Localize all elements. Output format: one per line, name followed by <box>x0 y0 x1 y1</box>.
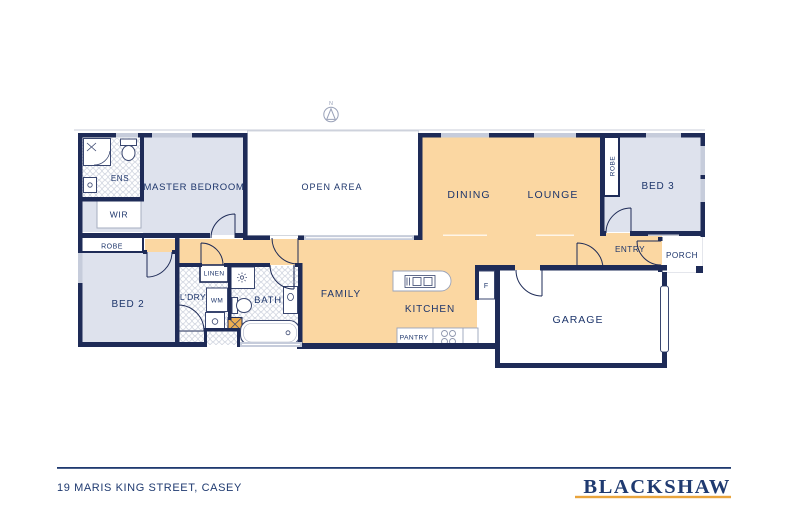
label-dining: DINING <box>447 189 490 201</box>
label-kitchen: KITCHEN <box>405 304 455 315</box>
label-pantry: PANTRY <box>400 335 429 342</box>
label-entry: ENTRY <box>615 245 645 254</box>
label-robe2: ROBE <box>101 244 123 251</box>
compass-n: N <box>329 101 333 107</box>
dining-window <box>441 133 489 138</box>
label-porch: PORCH <box>666 251 698 260</box>
kitchen-island <box>393 271 451 291</box>
ens-vanity <box>84 178 97 193</box>
label-family: FAMILY <box>321 289 361 300</box>
label-master: MASTER BEDROOM <box>143 182 244 193</box>
brand-logo: BLACKSHAW <box>583 476 731 498</box>
bath-shower <box>230 267 255 289</box>
label-wm: WM <box>211 298 223 305</box>
bath-vanity <box>284 287 298 314</box>
footer-address: 19 MARIS KING STREET, CASEY <box>57 482 242 494</box>
label-bed2: BED 2 <box>112 299 145 310</box>
lounge-window <box>534 133 576 138</box>
bathtub <box>241 321 300 346</box>
label-garage: GARAGE <box>553 314 604 326</box>
ens-toilet-bowl <box>122 146 135 161</box>
bed3-top-window <box>646 133 681 138</box>
label-ens: ENS <box>111 174 129 183</box>
bed3-right-window-2 <box>701 179 706 202</box>
floorplan-svg: ENS MASTER BEDROOM WIR ROBE BED 2 L'DRY … <box>0 0 790 527</box>
ens-toilet-tank <box>121 139 137 146</box>
label-lounge: LOUNGE <box>528 189 579 201</box>
compass-needle <box>327 109 336 120</box>
label-robe3: ROBE <box>610 156 617 177</box>
ens-shower <box>84 139 111 166</box>
porch-post <box>696 266 703 273</box>
bed2-window <box>78 253 83 283</box>
toilet-bowl <box>237 299 252 313</box>
label-fridge: F <box>484 283 488 290</box>
label-bath: BATH <box>254 295 282 306</box>
master-window <box>152 133 192 138</box>
label-open-area: OPEN AREA <box>301 182 362 192</box>
laundry-step-wall <box>204 328 240 332</box>
label-bed3: BED 3 <box>642 181 675 192</box>
label-linen: LINEN <box>204 271 225 278</box>
brand-gold-underline <box>575 496 731 498</box>
floorplan-page: ENS MASTER BEDROOM WIR ROBE BED 2 L'DRY … <box>0 0 790 527</box>
label-wir: WIR <box>110 210 129 220</box>
north-compass: N <box>324 101 338 122</box>
bed3-right-window-1 <box>701 146 706 175</box>
ens-window <box>116 133 138 138</box>
label-ldry: L'DRY <box>180 292 206 302</box>
garage-door-panel <box>661 286 669 352</box>
footer: 19 MARIS KING STREET, CASEY BLACKSHAW <box>57 467 731 498</box>
footer-rule <box>57 467 731 469</box>
fridge-nook <box>479 300 495 343</box>
bed2-floor <box>81 252 177 343</box>
